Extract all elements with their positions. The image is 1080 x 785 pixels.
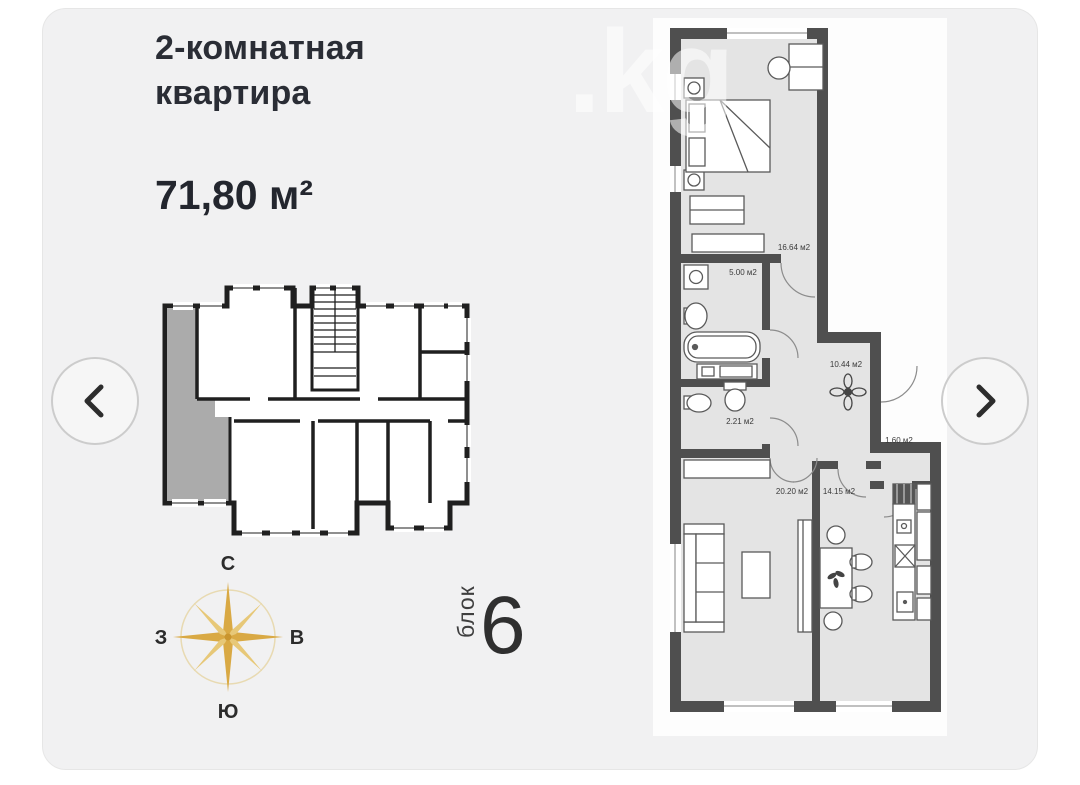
armchair [768, 57, 790, 79]
coffee-table [742, 552, 770, 598]
wc-sink [684, 394, 711, 412]
apartment-area: 71,80 м² [155, 172, 313, 219]
chevron-right-icon [970, 383, 1000, 419]
storage-area-label: 1.60 м2 [885, 436, 913, 445]
compass-rose: С Ю З В [150, 550, 310, 725]
dining-table [820, 548, 852, 608]
living-closet [684, 460, 770, 478]
compass-east-label: В [290, 627, 304, 649]
compass-star [173, 582, 283, 692]
chevron-left-icon [80, 383, 110, 419]
living-area-label: 20.20 м2 [776, 487, 809, 496]
washing-machine [684, 265, 708, 289]
compass-north-label: С [221, 553, 235, 575]
block-indicator: блок 6 [455, 585, 526, 667]
wall-unit-bottom [684, 170, 704, 190]
hallway-area-label: 10.44 м2 [830, 360, 863, 369]
block-number: 6 [480, 585, 526, 667]
sofa [684, 524, 724, 632]
compass-south-label: Ю [218, 701, 239, 723]
apartment-type-title: 2-комнатная квартира [155, 26, 365, 116]
toilet [724, 382, 746, 411]
double-bed [686, 100, 770, 172]
bathroom-sink [684, 303, 707, 329]
apartment-floor-plan: 16.64 м2 5.00 м2 10.44 м2 2.21 м2 1.60 м… [650, 16, 950, 742]
bath-vanity [697, 364, 757, 379]
kitchen-area-label: 14.15 м2 [823, 487, 856, 496]
apartment-type-line2: квартира [155, 71, 365, 116]
carousel-next-button[interactable] [941, 357, 1029, 445]
apartment-type-line1: 2-комнатная [155, 26, 365, 71]
block-word: блок [453, 615, 480, 638]
building-level-plan [158, 278, 508, 540]
wc-area-label: 2.21 м2 [726, 417, 754, 426]
kitchen-counter [893, 484, 931, 620]
bathtub [684, 332, 760, 362]
bathroom-area-label: 5.00 м2 [729, 268, 757, 277]
listing-screen: 2-комнатная квартира 71,80 м² [0, 0, 1080, 785]
wall-unit-top [684, 78, 704, 98]
compass-west-label: З [155, 627, 168, 649]
tv-stand [798, 520, 812, 632]
bedroom-bench [690, 196, 744, 224]
bedroom-dresser [692, 234, 764, 252]
carousel-prev-button[interactable] [51, 357, 139, 445]
bedroom-area-label: 16.64 м2 [778, 243, 811, 252]
wardrobe [789, 44, 823, 90]
